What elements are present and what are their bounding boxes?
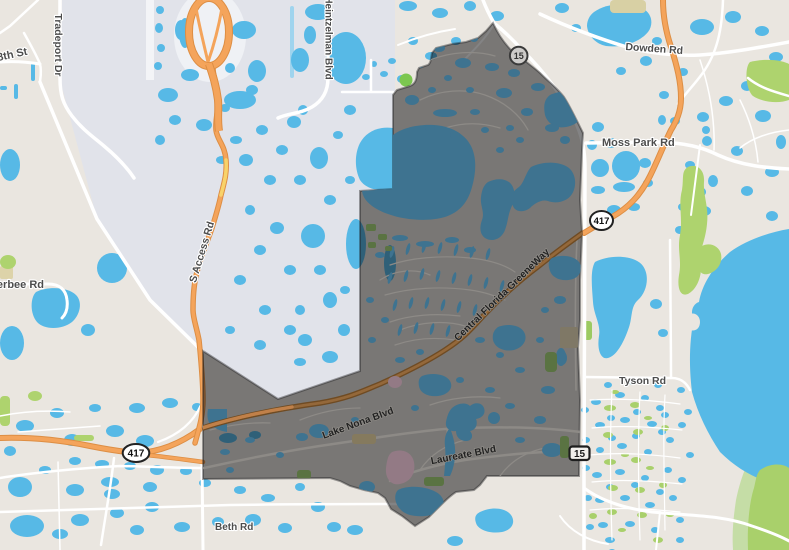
svg-text:Beth Rd: Beth Rd [215,522,253,533]
svg-text:417: 417 [128,449,145,460]
svg-text:Moss Park Rd: Moss Park Rd [602,137,675,149]
svg-text:417: 417 [594,216,610,227]
svg-text:15: 15 [514,51,524,61]
svg-text:Tradeport Dr: Tradeport Dr [52,13,64,76]
svg-text:Wetherbee Rd: Wetherbee Rd [0,279,44,291]
svg-text:Tyson Rd: Tyson Rd [619,375,666,387]
svg-text:15: 15 [574,449,586,460]
svg-text:Heintzelman Blvd: Heintzelman Blvd [323,0,334,80]
